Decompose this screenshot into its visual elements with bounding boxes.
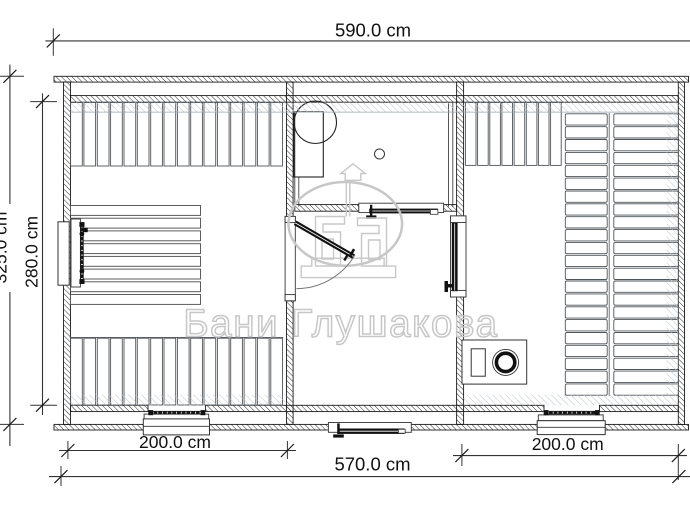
svg-text:325.0 cm: 325.0 cm <box>0 212 11 284</box>
svg-text:570.0 cm: 570.0 cm <box>334 454 410 475</box>
svg-text:200.0 cm: 200.0 cm <box>532 434 604 454</box>
svg-text:590.0 cm: 590.0 cm <box>335 19 411 40</box>
svg-text:280.0 cm: 280.0 cm <box>22 216 42 288</box>
svg-text:Бани Глушакова: Бани Глушакова <box>183 303 498 346</box>
